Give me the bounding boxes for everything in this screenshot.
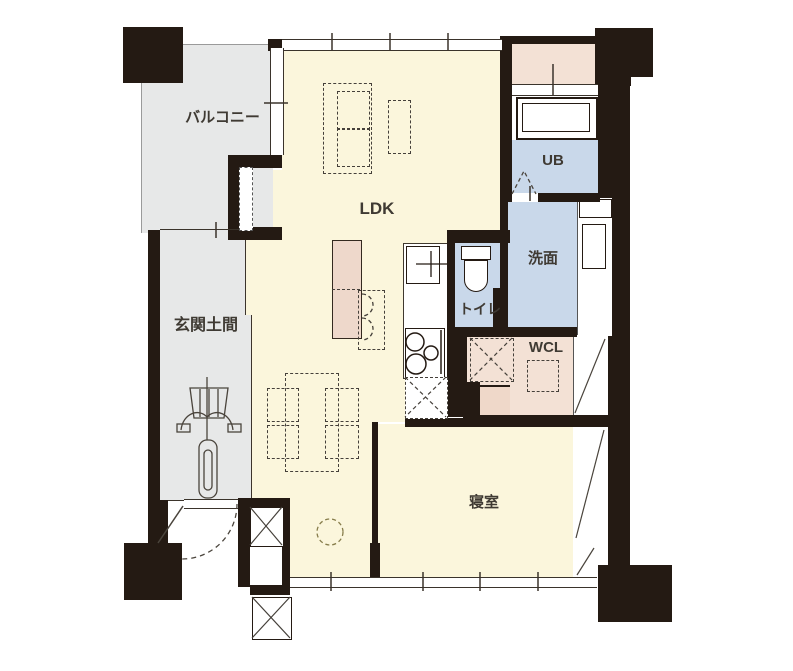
pocket-sliding-door-icon [239, 167, 253, 231]
sofa [337, 91, 370, 130]
wall [447, 230, 510, 243]
chair [325, 425, 359, 459]
room-label-ldk: LDK [355, 199, 399, 219]
window [380, 577, 597, 588]
wall [538, 193, 600, 202]
wall [608, 336, 630, 572]
wall [598, 77, 630, 198]
pillar-cross-box [250, 507, 284, 547]
ldk-floor [290, 500, 372, 585]
counter-extension [358, 290, 385, 350]
bathtub-inner [522, 103, 590, 132]
wall [405, 418, 463, 427]
wall [612, 196, 630, 336]
entrance-floor-step [245, 315, 252, 500]
closet-door-area [573, 335, 609, 415]
entrance-floor [160, 232, 246, 501]
pillar [123, 27, 183, 83]
window [270, 48, 284, 155]
wall [500, 36, 512, 202]
sofa [337, 128, 370, 167]
pillar [124, 543, 182, 600]
bedroom-closet-area [573, 426, 608, 578]
window [512, 84, 598, 96]
wall [500, 36, 598, 44]
kitchen-sink-icon [406, 246, 440, 284]
wall [500, 202, 508, 293]
room-label-closet: WCL [525, 339, 567, 356]
toilet-bowl-icon [464, 260, 488, 292]
window [290, 577, 380, 588]
chair [325, 388, 359, 422]
wall [238, 498, 250, 587]
closet-storage [527, 360, 559, 392]
room-label-balcony: バルコニー [170, 106, 275, 127]
room-label-unit-bath: UB [539, 152, 567, 169]
wall [250, 585, 290, 595]
wall [370, 543, 380, 580]
chair [267, 425, 299, 459]
side-table [388, 100, 411, 154]
wall [447, 337, 467, 417]
pillar-cross-box [252, 597, 292, 640]
wall [148, 230, 160, 503]
window [282, 39, 502, 51]
vanity-icon [582, 224, 606, 269]
wall [447, 327, 577, 337]
stove-icon [405, 328, 445, 378]
wall [372, 422, 378, 543]
entrance-door-opening [184, 499, 238, 509]
chair [267, 388, 299, 422]
refrigerator-space [405, 377, 448, 419]
floor-plan: バルコニー 玄関土間 LDK UB 洗面 トイレ WCL 寝室 [0, 0, 793, 671]
pillar [598, 565, 672, 622]
room-label-bedroom: 寝室 [466, 491, 502, 512]
closet-storage-box [480, 385, 510, 415]
counter-edge [332, 289, 360, 290]
wall [467, 382, 480, 417]
room-label-entrance: 玄関土間 [168, 311, 244, 335]
balcony-divider [160, 229, 240, 233]
closet-cross-box [470, 338, 514, 382]
service-balcony-floor [512, 43, 598, 85]
washroom-floor [508, 202, 577, 335]
room-label-washroom: 洗面 [525, 247, 561, 268]
wall [447, 243, 455, 330]
room-label-toilet: トイレ [457, 299, 503, 319]
wall [148, 500, 168, 545]
wall [463, 415, 612, 427]
toilet-tank-icon [461, 246, 491, 260]
